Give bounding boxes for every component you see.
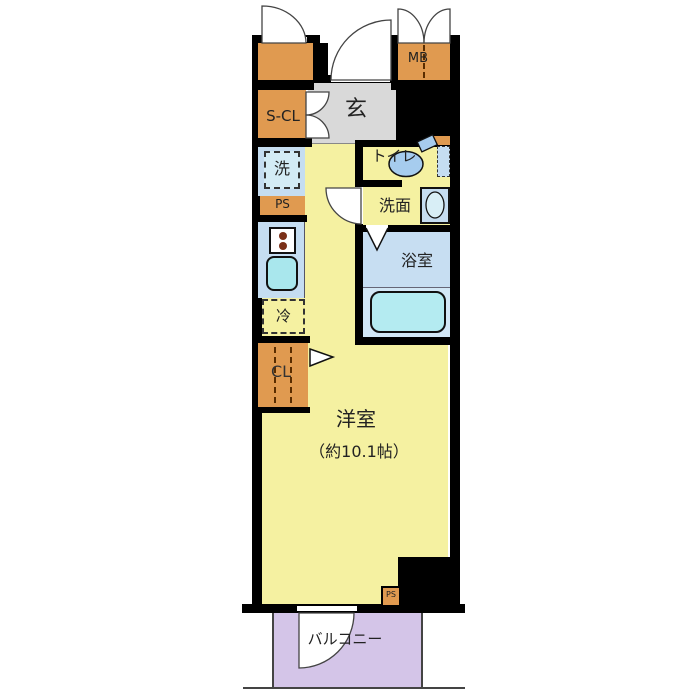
main-room-size-label: （約10.1帖）: [279, 443, 439, 461]
washer-label: 洗: [264, 160, 300, 178]
toilet-label: トイレ: [363, 148, 425, 165]
entrance-label: 玄: [326, 98, 386, 122]
mb-door-arc-right: [424, 9, 450, 43]
main-room-label: 洋室: [296, 408, 416, 430]
bath-folding-door: [366, 225, 388, 250]
trunk-label: S-CL: [258, 108, 308, 125]
pipe-space-lower-label: PS: [381, 591, 401, 600]
closet-direction-triangle: [310, 349, 333, 366]
trunk-door-arc: [262, 6, 306, 43]
bath-label: 浴室: [385, 252, 449, 270]
closet-label: CL: [258, 363, 304, 381]
entrance-door-arc: [331, 20, 391, 80]
washroom-label: 洗面: [363, 197, 427, 215]
meter-box-label: MB: [398, 52, 438, 66]
pipe-space-upper-label: PS: [260, 198, 305, 211]
fridge-label: 冷: [262, 308, 305, 325]
balcony-label: バルコニー: [290, 631, 400, 648]
mb-door-arc-left: [398, 9, 424, 43]
washroom-door-arc: [326, 188, 361, 224]
floor-plan: S-CL MB 玄 トイレ 洗 PS 洗面 浴室 冷 CL 洋室 （約10.1帖…: [0, 0, 700, 700]
washbasin-bowl: [426, 192, 444, 218]
